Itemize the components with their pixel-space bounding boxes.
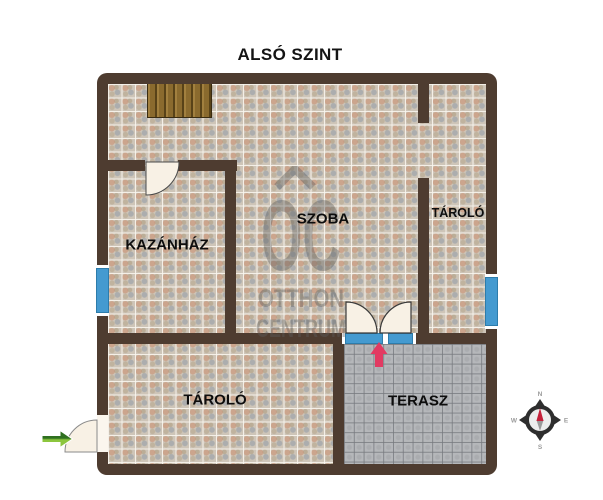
compass-point-south (534, 432, 546, 441)
compass-rose: N E S W (511, 391, 569, 451)
compass-label-north: N (538, 391, 543, 398)
wall-kazanhaz-szoba (225, 160, 236, 344)
entrance-door-arc (65, 420, 97, 452)
compass-point-east (552, 414, 561, 426)
compass-ring (527, 407, 553, 433)
compass-needle-north (536, 408, 543, 421)
window-left (96, 268, 109, 313)
wall-tarolo-terasz (333, 344, 344, 464)
terrace-door-sill-left (345, 333, 383, 344)
watermark-group: OC OTTHON CENTRUM (256, 169, 346, 341)
compass-needle-south (537, 421, 543, 431)
watermark-line1: OTTHON (258, 285, 344, 313)
window-right (485, 277, 498, 326)
room-label-szoba: SZOBA (297, 211, 350, 228)
wall-tarolo-bottom (418, 333, 486, 344)
entrance-opening (97, 415, 108, 452)
watermark-line2: CENTRUM (256, 315, 346, 341)
compass-point-north (534, 399, 546, 408)
wall-kazanhaz-top-left (108, 160, 145, 171)
room-label-terasz: TERASZ (388, 393, 448, 410)
stairs (147, 84, 212, 118)
compass-label-east: E (564, 418, 569, 425)
wall-szoba-tarolo-upper (418, 84, 429, 123)
compass-point-west (519, 414, 528, 426)
floor-plan: OC OTTHON CENTRUM KAZÁNHÁZ SZOBA TÁROLÓ … (97, 73, 497, 475)
entrance-arrow-icon (42, 431, 73, 448)
room-label-tarolo-felso: TÁROLÓ (432, 206, 485, 220)
floor-plan-page: ALSÓ SZINT OC OTTHON CENTRUM KAZÁNHÁZ (0, 0, 603, 500)
wall-szoba-tarolo-lower (418, 178, 429, 344)
otthon-centrum-watermark: OC OTTHON CENTRUM (253, 166, 349, 341)
page-title: ALSÓ SZINT (90, 45, 490, 65)
watermark-logo-text: OC (261, 180, 341, 292)
compass-label-south: S (538, 444, 543, 451)
terrace-door-sill-right (388, 333, 413, 344)
room-label-kazanhaz: KAZÁNHÁZ (125, 237, 208, 254)
compass-label-west: W (511, 418, 518, 425)
room-label-tarolo-also: TÁROLÓ (183, 392, 246, 409)
